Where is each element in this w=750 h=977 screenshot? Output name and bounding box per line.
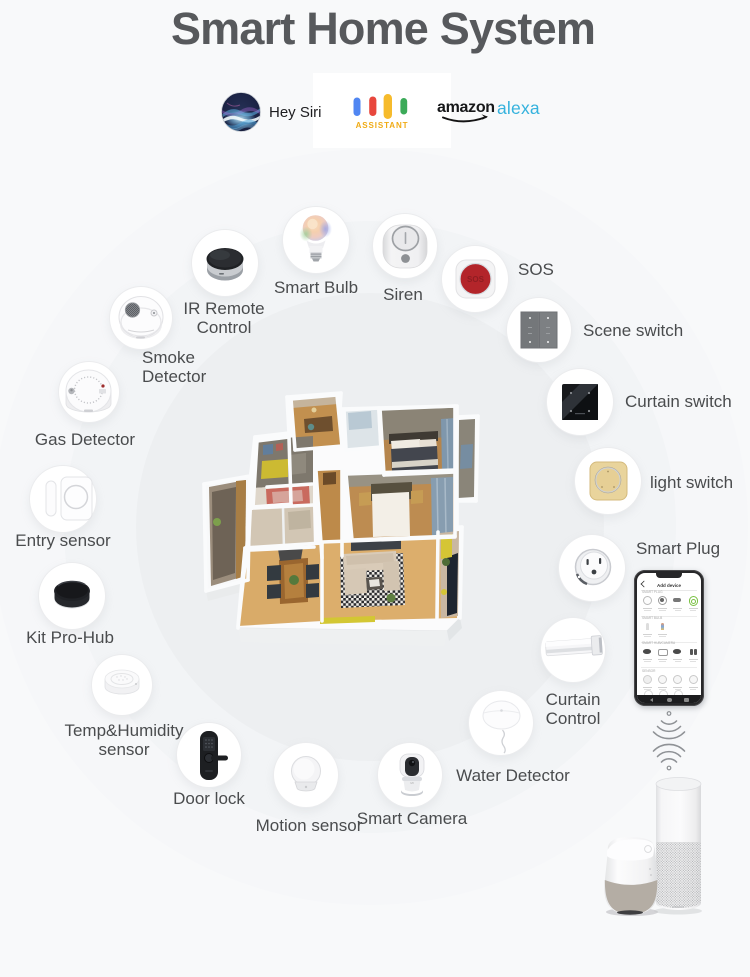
svg-text:amazon: amazon: [672, 905, 684, 909]
svg-text:SOS: SOS: [467, 275, 485, 284]
